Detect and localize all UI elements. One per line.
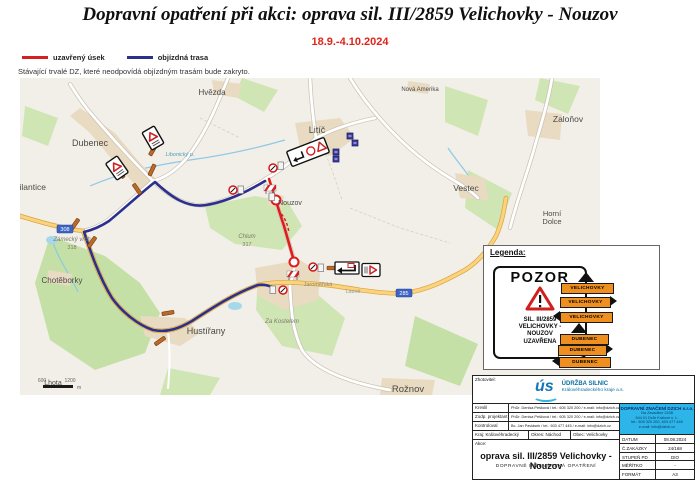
- street-label: Jaroměřská: [304, 282, 334, 288]
- place-label: Vestec: [453, 183, 479, 193]
- supplier-box: DOPRAVNÍ ZNAČENÍ DZICH s.r.o. Na Zavadil…: [620, 404, 694, 435]
- road-badge-308: 308: [57, 225, 73, 233]
- company-name: ÚDRŽBA SILNIC: [562, 381, 624, 388]
- detour-route-label: objízdná trasa: [158, 53, 208, 62]
- place-label: Litíč: [309, 125, 326, 135]
- row-value: PhDr. Denisa Pešková / tel.: 605 320 200…: [509, 413, 620, 422]
- place-label: Dolce: [542, 217, 561, 226]
- row-value: Bc. Jan Pavlásek / tel.: 603 477 445 / e…: [509, 422, 620, 431]
- place-label: Zaloňov: [553, 114, 584, 124]
- detour-diagram-board-icon: [335, 262, 359, 274]
- closure-endpoint-velichovky: [290, 258, 299, 267]
- direction-arrow-up-icon: [571, 323, 587, 333]
- direction-sign: VELICHOVKY: [561, 283, 614, 294]
- detour-route-swatch: [127, 56, 153, 59]
- meta-label: Č.ZAKÁZKY: [620, 444, 656, 453]
- svg-text:308: 308: [60, 227, 69, 233]
- meta-value: -: [656, 461, 694, 470]
- road-badge-285: 285: [396, 289, 412, 297]
- contractor-label: Zhotovitel:: [475, 377, 496, 382]
- svg-text:285: 285: [399, 291, 408, 297]
- akce-label: Akce:: [475, 441, 486, 446]
- place-label: Hustířany: [187, 326, 226, 336]
- row-label: Zodp. projektant: [473, 413, 509, 422]
- traffic-plan-page: Dopravní opatření při akci: oprava sil. …: [0, 0, 700, 495]
- place-label: Rožnov: [392, 384, 424, 395]
- supplier-line: e-mail: info@dzich.cz: [620, 425, 694, 430]
- title-block: Zhotovitel: ús ÚDRŽBA SILNIC Královéhrad…: [472, 375, 695, 480]
- company-subname: Královéhradeckého kraje a.s.: [562, 388, 624, 394]
- page-title: Dopravní opatření při akci: oprava sil. …: [0, 4, 700, 26]
- route-legend: uzavřený úsek objízdná trasa: [22, 53, 208, 62]
- contractor-identity: ús ÚDRŽBA SILNIC Královéhradeckého kraje…: [535, 380, 624, 394]
- okres-cell: Okres: Náchod: [529, 431, 571, 440]
- stream-label: Libonický p.: [165, 152, 194, 158]
- place-label: Nová Amerika: [401, 87, 439, 93]
- meta-value: DIO: [656, 453, 694, 462]
- note-text: Stávající trvalé DZ, které neodpovídá ob…: [18, 67, 250, 76]
- logo-swoosh: [533, 391, 559, 402]
- row-label: Kontroloval: [473, 422, 509, 431]
- warning-triangle-icon: [525, 286, 555, 311]
- direction-sign: DUBENEC: [558, 345, 607, 356]
- direction-arrow-right-icon: [610, 296, 617, 306]
- place-label: Nouzov: [278, 200, 302, 207]
- meta-label: DATUM: [620, 435, 656, 444]
- place-label: Dubenec: [72, 138, 109, 148]
- direction-sign: VELICHOVKY: [560, 297, 611, 308]
- obec-cell: Obec: Velichovky: [571, 431, 620, 440]
- elevation-label: 317: [242, 242, 251, 248]
- place-label: Chotěborky: [42, 276, 83, 285]
- svg-text:1200: 1200: [64, 378, 75, 384]
- pozor-board-icon: [362, 264, 380, 277]
- row-value: PhDr. Denisa Pešková / tel.: 605 320 200…: [509, 404, 620, 413]
- meta-value: A3: [656, 470, 694, 479]
- svg-text:600: 600: [38, 378, 47, 384]
- meta-label: MĚŘÍTKO: [620, 461, 656, 470]
- elevation-label: 318: [67, 245, 76, 251]
- kraj-cell: Kraj: Královéhradecký: [473, 431, 529, 440]
- contractor-row: Zhotovitel: ús ÚDRŽBA SILNIC Královéhrad…: [473, 376, 694, 404]
- direction-arrow-right-icon: [606, 344, 613, 354]
- place-label: Chlum: [238, 234, 255, 240]
- direction-arrow-left-icon: [553, 311, 560, 321]
- closed-section-label: uzavřený úsek: [53, 53, 105, 62]
- place-label: Hvězda: [198, 88, 226, 97]
- row-label: Kreslil: [473, 404, 509, 413]
- direction-arrow-up-icon: [578, 272, 594, 282]
- svg-text:m: m: [77, 385, 81, 391]
- legend-heading: Legenda:: [490, 248, 526, 257]
- date-range: 18.9.-4.10.2024: [0, 36, 700, 48]
- place-label: Za Kostelem: [264, 319, 299, 325]
- akce-cell: Akce: oprava sil. III/2859 Velichovky - …: [473, 440, 620, 479]
- direction-arrow-left-icon: [552, 356, 559, 366]
- direction-sign: VELICHOVKY: [560, 312, 613, 323]
- place-label: Zámecký vrch: [52, 237, 91, 243]
- meta-label: FORMÁT: [620, 470, 656, 479]
- direction-sign: DUBENEC: [560, 334, 609, 345]
- meta-label: STUPEŇ PD: [620, 453, 656, 462]
- place-label: Lázně: [346, 289, 361, 295]
- akce-subtitle: DOPRAVNĚ INŽENÝRSKÁ OPATŘENÍ: [473, 464, 619, 469]
- direction-sign: DUBENEC: [559, 357, 611, 368]
- us-logo: ús: [535, 380, 554, 394]
- meta-value: 08.08.2024: [656, 435, 694, 444]
- legend-box: Legenda: POZOR SIL. III/2859 VELICHOVKY …: [483, 245, 660, 370]
- meta-value: 24/168: [656, 444, 694, 453]
- place-label: Vilantice: [20, 182, 46, 192]
- closed-section-swatch: [22, 56, 48, 59]
